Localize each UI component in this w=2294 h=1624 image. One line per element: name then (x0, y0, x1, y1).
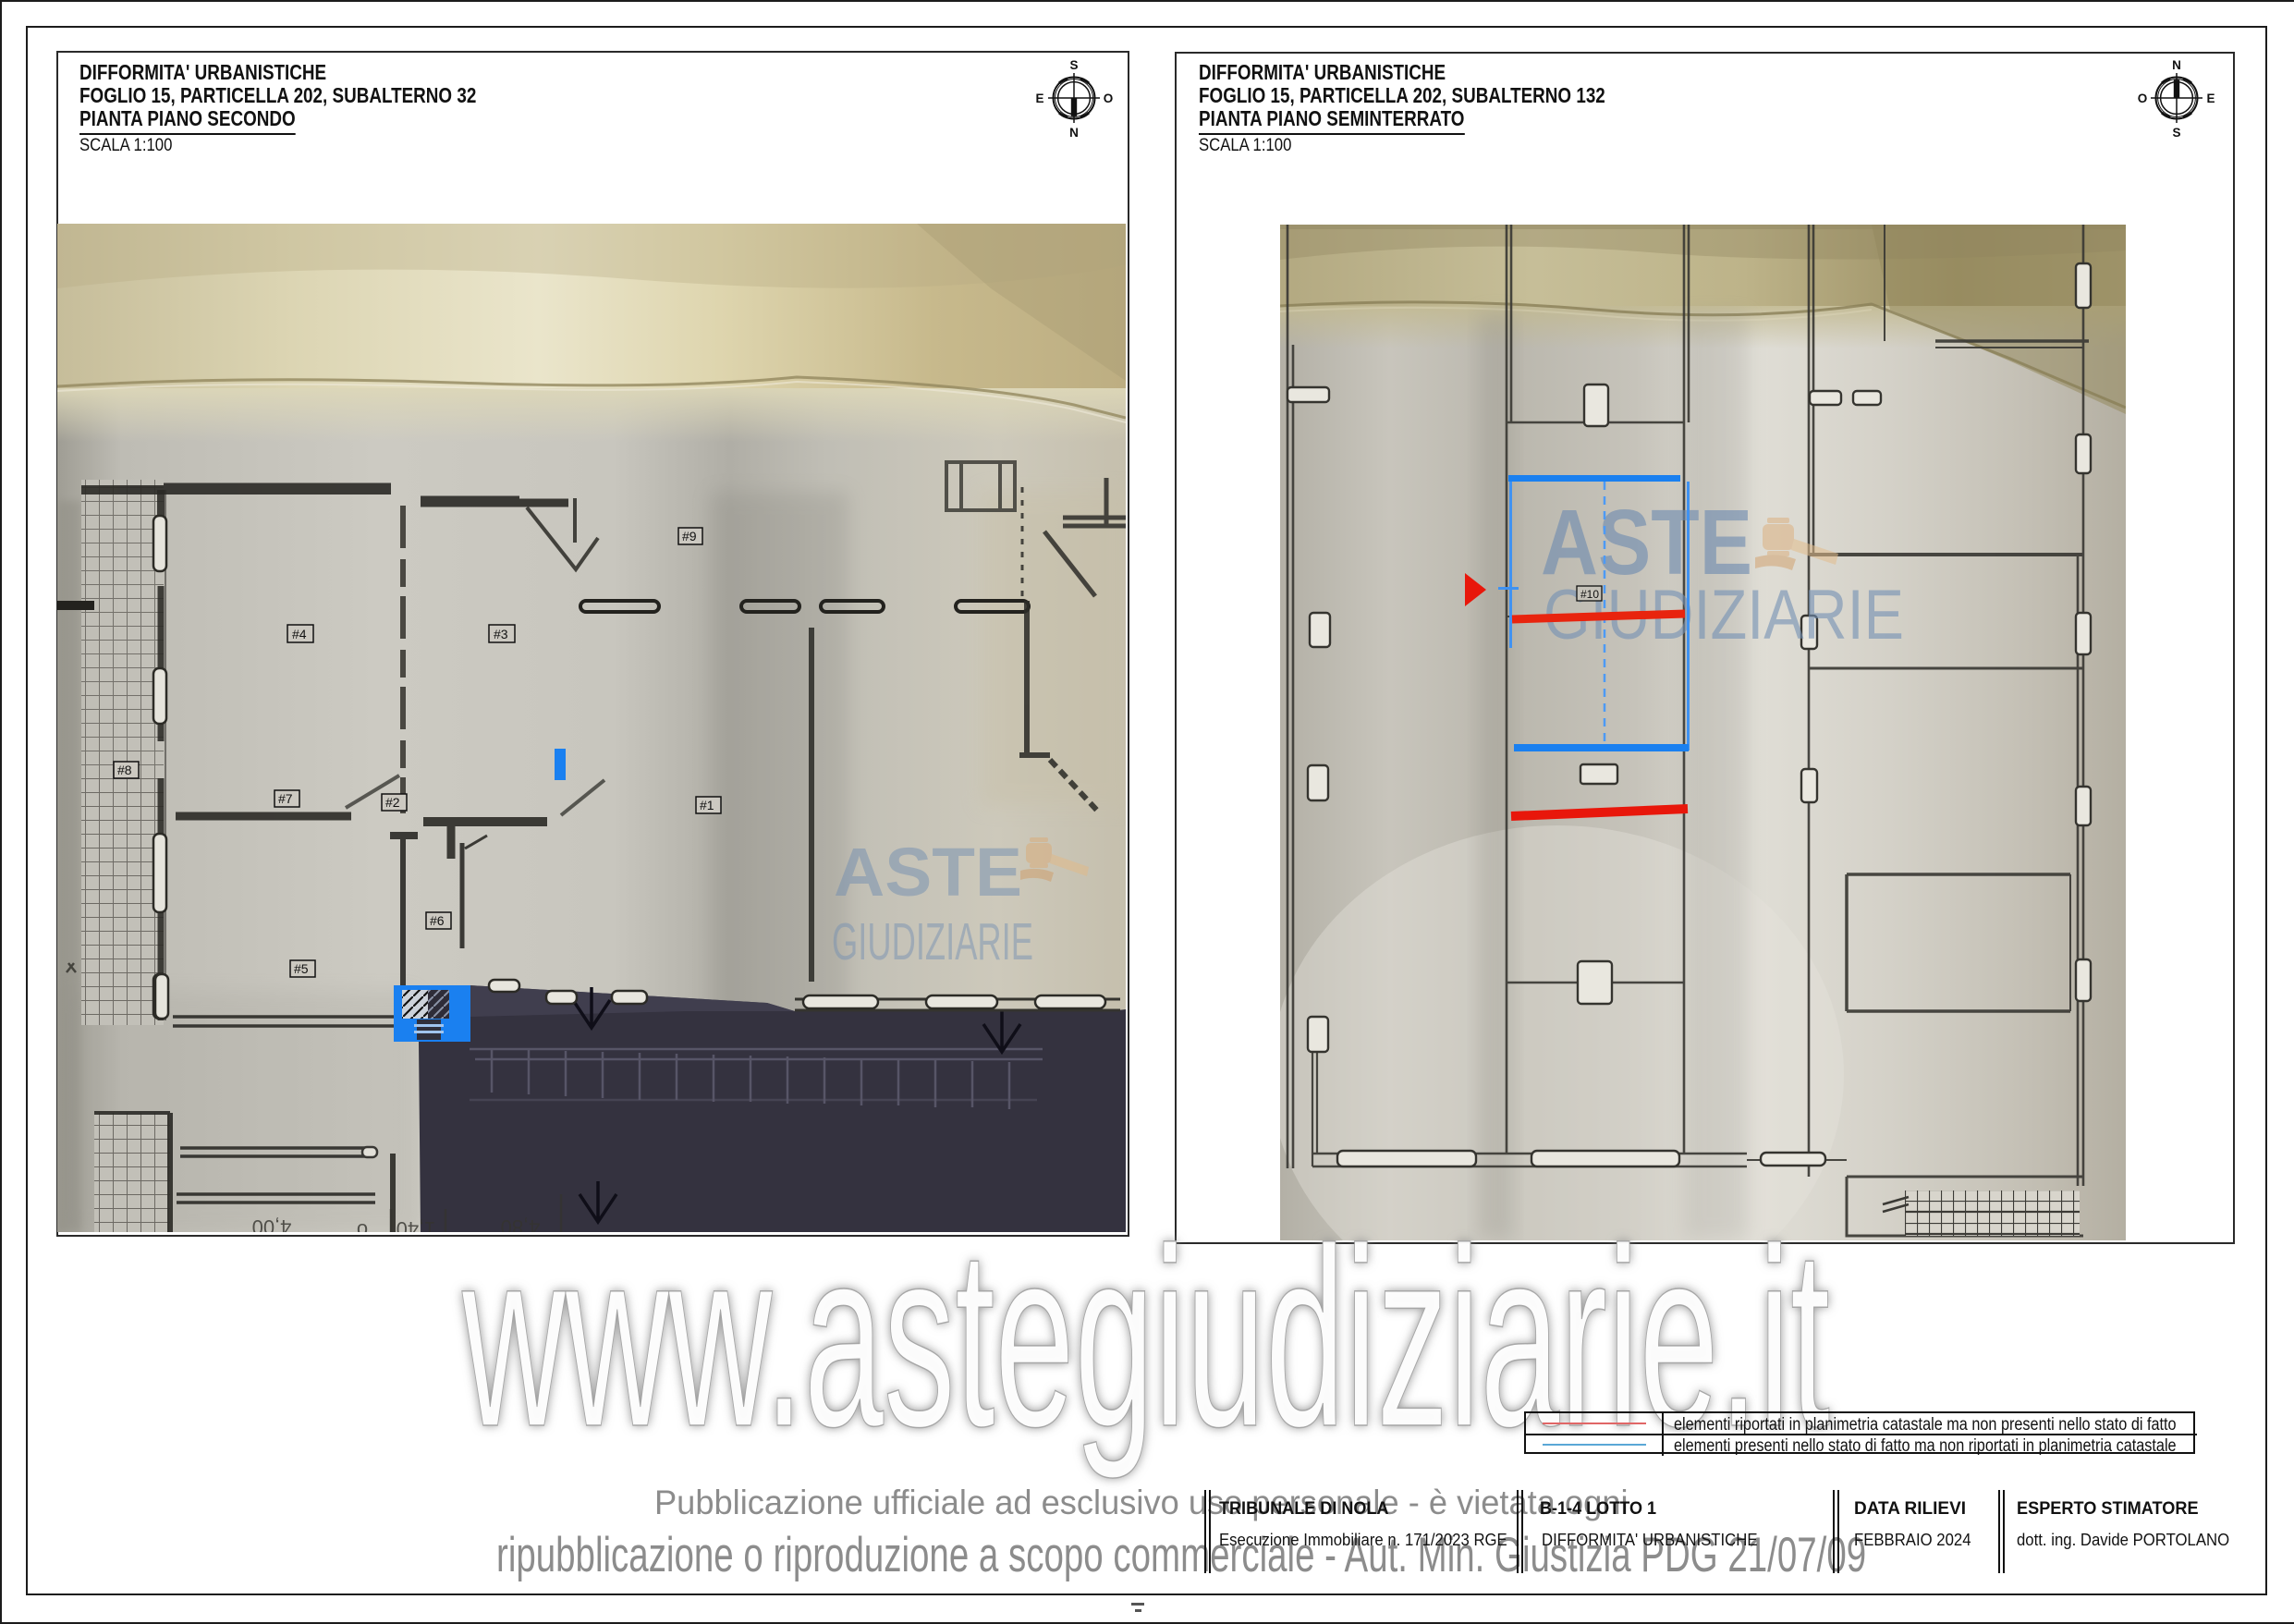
svg-text:E: E (2206, 92, 2215, 105)
svg-text:#6: #6 (430, 913, 445, 928)
svg-text:#9: #9 (682, 529, 697, 543)
svg-text:#10: #10 (1580, 588, 1599, 601)
svg-text:S: S (2172, 126, 2180, 140)
svg-text:GIUDIZIARIE: GIUDIZIARIE (832, 912, 1033, 971)
svg-text:E: E (1035, 92, 1043, 105)
svg-text:N: N (2172, 58, 2181, 72)
svg-text:#7: #7 (278, 791, 293, 806)
svg-text:#5: #5 (294, 961, 309, 976)
svg-text:#3: #3 (494, 627, 508, 641)
svg-text:S: S (1069, 58, 1078, 72)
svg-text:#2: #2 (385, 795, 400, 810)
svg-text:O: O (2138, 92, 2148, 105)
svg-text:#4: #4 (292, 627, 307, 641)
svg-text:N: N (1069, 126, 1079, 140)
svg-text:ASTE: ASTE (834, 834, 1022, 910)
svg-text:O: O (1104, 92, 1114, 105)
svg-text:#1: #1 (700, 798, 714, 812)
svg-text:#8: #8 (117, 763, 132, 777)
